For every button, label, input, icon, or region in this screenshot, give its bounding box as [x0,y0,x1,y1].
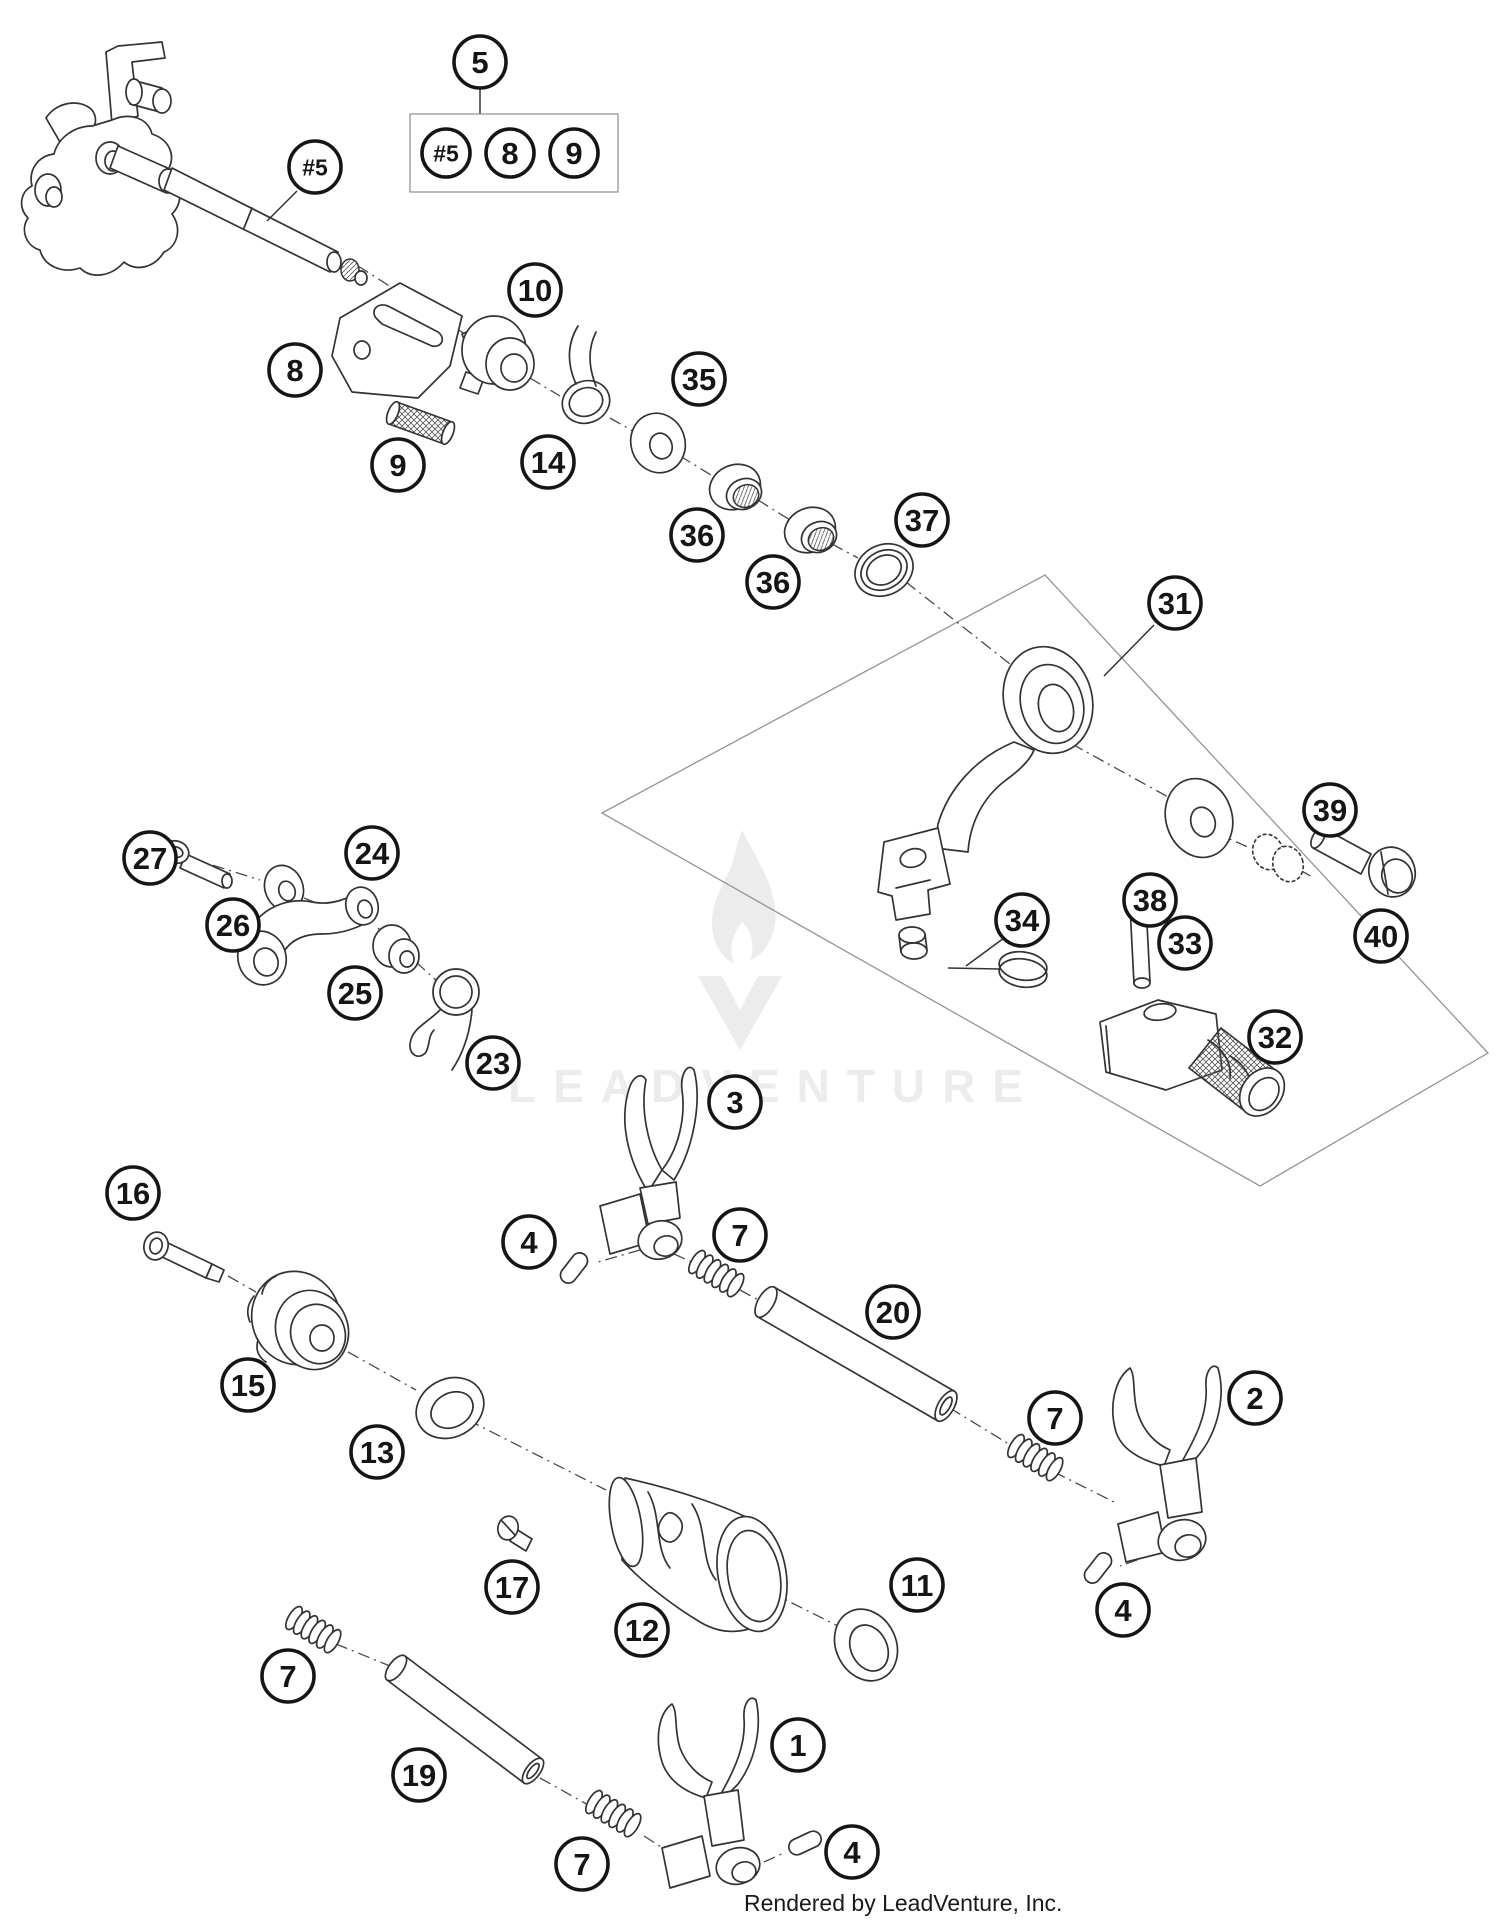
svg-text:34: 34 [1005,903,1040,938]
svg-text:#5: #5 [433,140,459,166]
callout-2-36[interactable]: 2 [1229,1372,1281,1424]
callout-12-33[interactable]: 12 [616,1604,668,1656]
selector-plate-drawing [332,283,462,398]
callout-13-31[interactable]: 13 [351,1426,403,1478]
callout-11-34[interactable]: 11 [891,1559,943,1611]
svg-text:7: 7 [731,1218,748,1253]
svg-text:5: 5 [471,45,488,80]
leadventure-flame-logo-icon [698,830,782,1050]
callout-4-26[interactable]: 4 [503,1216,555,1268]
svg-text:12: 12 [625,1613,659,1648]
callout-27-17[interactable]: 27 [124,832,176,884]
svg-text:#5: #5 [302,154,328,180]
svg-text:32: 32 [1258,1020,1292,1055]
svg-text:8: 8 [286,353,303,388]
callout-36-10[interactable]: 36 [671,509,723,561]
svg-text:4: 4 [1114,1593,1132,1628]
callout-num5-1[interactable]: #5 [422,129,470,177]
svg-text:13: 13 [360,1435,394,1470]
svg-text:36: 36 [680,518,714,553]
svg-text:37: 37 [905,503,939,538]
callout-4-37[interactable]: 4 [1097,1584,1149,1636]
svg-text:23: 23 [476,1046,510,1081]
spring-7d-drawing [583,1788,644,1839]
svg-text:27: 27 [133,841,167,876]
shift-fork-2-drawing [1113,1366,1221,1565]
callout-9-3[interactable]: 9 [550,129,598,177]
svg-text:15: 15 [231,1368,265,1403]
callout-17-32[interactable]: 17 [486,1561,538,1613]
shift-fork-1-drawing [658,1698,764,1889]
callout-10-7[interactable]: 10 [509,264,561,316]
callout-23-21[interactable]: 23 [467,1037,519,1089]
shift-rail-20-drawing [751,1283,962,1424]
washer-38-drawing [1155,770,1242,866]
callout-24-18[interactable]: 24 [346,827,398,879]
callout-7-27[interactable]: 7 [714,1209,766,1261]
lock-washers-39-drawing [1248,830,1308,886]
snap-ring-34-drawing [997,949,1048,990]
svg-text:26: 26 [216,908,250,943]
callout-32-24[interactable]: 32 [1249,1011,1301,1063]
callout-19-39[interactable]: 19 [393,1749,445,1801]
callout-8-5[interactable]: 8 [269,344,321,396]
callout-7-38[interactable]: 7 [262,1650,314,1702]
svg-text:14: 14 [531,445,566,480]
spring-7c-drawing [283,1604,344,1655]
washer-35-drawing [623,406,693,480]
seal-ring-11-drawing [823,1599,909,1692]
svg-text:40: 40 [1364,919,1398,954]
callout-31-13[interactable]: 31 [1149,577,1201,629]
callout-14-8[interactable]: 14 [522,436,574,488]
callout-39-15[interactable]: 39 [1304,784,1356,836]
svg-text:7: 7 [279,1659,296,1694]
screw-17-drawing [495,1514,532,1551]
pin-4b-drawing [1081,1550,1115,1587]
callout-5-0[interactable]: 5 [454,36,506,88]
callout-37-12[interactable]: 37 [896,494,948,546]
callout-25-20[interactable]: 25 [329,967,381,1019]
watermark-text: LEADVENTURE [508,1060,1040,1112]
pin-4a-drawing [557,1250,591,1287]
callout-20-28[interactable]: 20 [867,1286,919,1338]
svg-text:31: 31 [1158,586,1192,621]
footer-credit: Rendered by LeadVenture, Inc. [744,1890,1062,1916]
bolt-16-drawing [141,1229,224,1282]
hairpin-spring-14-drawing [556,326,615,430]
svg-text:39: 39 [1313,793,1347,828]
svg-text:19: 19 [402,1758,436,1793]
callout-3-25[interactable]: 3 [709,1076,761,1128]
svg-text:7: 7 [1046,1401,1063,1436]
svg-text:7: 7 [573,1847,590,1882]
svg-text:35: 35 [682,362,716,397]
callout-35-9[interactable]: 35 [673,353,725,405]
callout-num5-4[interactable]: #5 [289,141,341,193]
callout-7-35[interactable]: 7 [1029,1392,1081,1444]
svg-text:38: 38 [1133,883,1167,918]
svg-text:11: 11 [901,1568,934,1603]
kickstart-lever-drawing [878,636,1105,959]
svg-text:8: 8 [501,136,518,171]
svg-text:36: 36 [756,565,790,600]
svg-text:10: 10 [518,273,552,308]
svg-text:33: 33 [1168,926,1202,961]
callout-9-6[interactable]: 9 [372,439,424,491]
svg-text:20: 20 [876,1295,910,1330]
bushing-36a-drawing [702,456,767,517]
watermark: LEADVENTURE [508,830,1040,1112]
callout-34-22[interactable]: 34 [996,894,1048,946]
exploded-parts-diagram: LEADVENTURE [0,0,1500,1923]
callout-38-14[interactable]: 38 [1124,874,1176,926]
svg-text:16: 16 [116,1176,150,1211]
callout-40-16[interactable]: 40 [1355,910,1407,962]
bushing-36b-drawing [777,499,842,560]
shift-shaft-bracket-drawing [22,42,180,275]
ring-13-drawing [405,1366,494,1450]
callout-26-19[interactable]: 26 [207,899,259,951]
callout-16-29[interactable]: 16 [107,1167,159,1219]
bushing-25-drawing [373,925,419,973]
callout-15-30[interactable]: 15 [222,1359,274,1411]
callout-1-41[interactable]: 1 [772,1719,824,1771]
svg-text:25: 25 [338,976,372,1011]
callout-8-2[interactable]: 8 [486,129,534,177]
svg-text:2: 2 [1246,1381,1263,1416]
collar-10-drawing [460,316,534,394]
svg-text:9: 9 [389,448,406,483]
parts-diagram-page: LEADVENTURE [0,0,1500,1923]
pin-4c-drawing [786,1829,824,1858]
svg-text:9: 9 [565,136,582,171]
callout-33-23[interactable]: 33 [1159,917,1211,969]
svg-text:24: 24 [355,836,390,871]
callout-7-40[interactable]: 7 [556,1838,608,1890]
svg-text:4: 4 [520,1225,538,1260]
svg-text:17: 17 [495,1570,529,1605]
callout-4-42[interactable]: 4 [826,1826,878,1878]
svg-text:1: 1 [789,1728,806,1763]
svg-text:3: 3 [726,1085,743,1120]
callout-36-11[interactable]: 36 [747,556,799,608]
svg-text:4: 4 [843,1835,861,1870]
